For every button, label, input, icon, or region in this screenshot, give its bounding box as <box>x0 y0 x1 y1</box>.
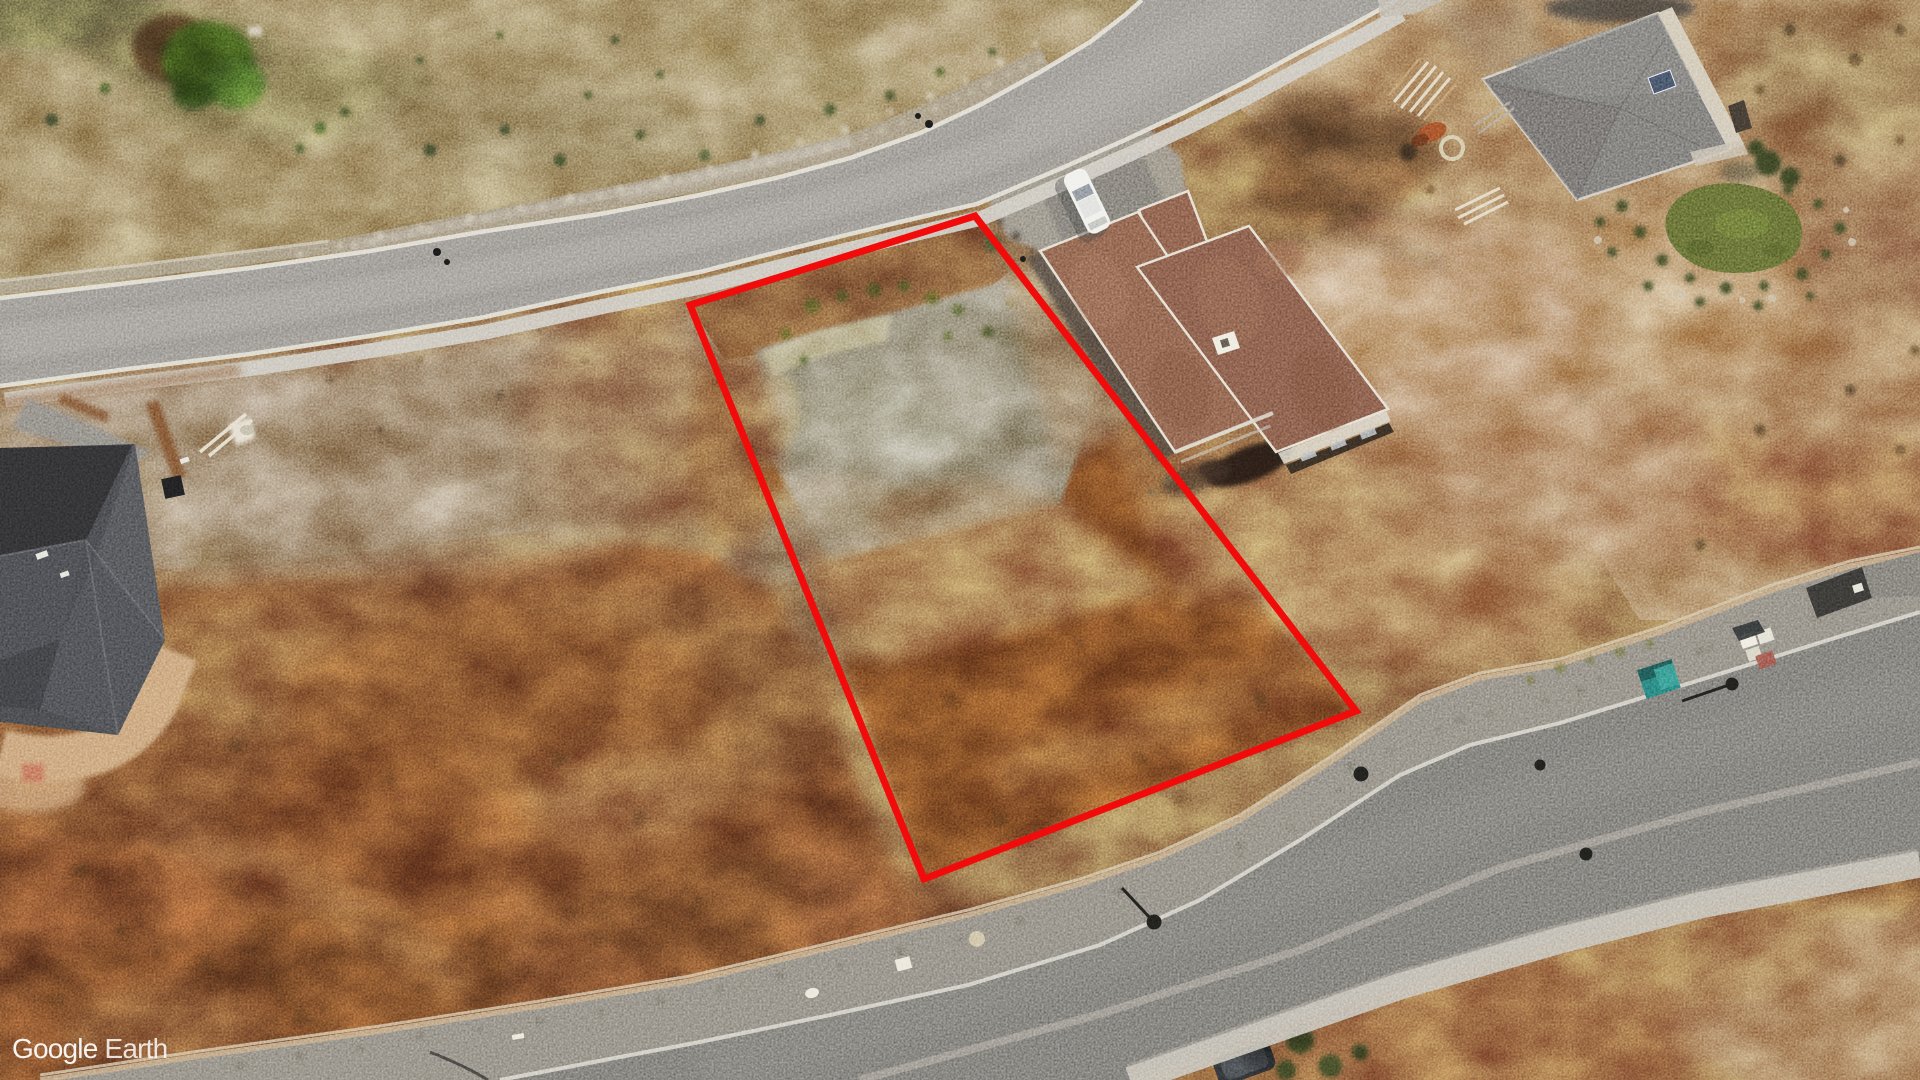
svg-text:Google Earth: Google Earth <box>12 1033 167 1064</box>
